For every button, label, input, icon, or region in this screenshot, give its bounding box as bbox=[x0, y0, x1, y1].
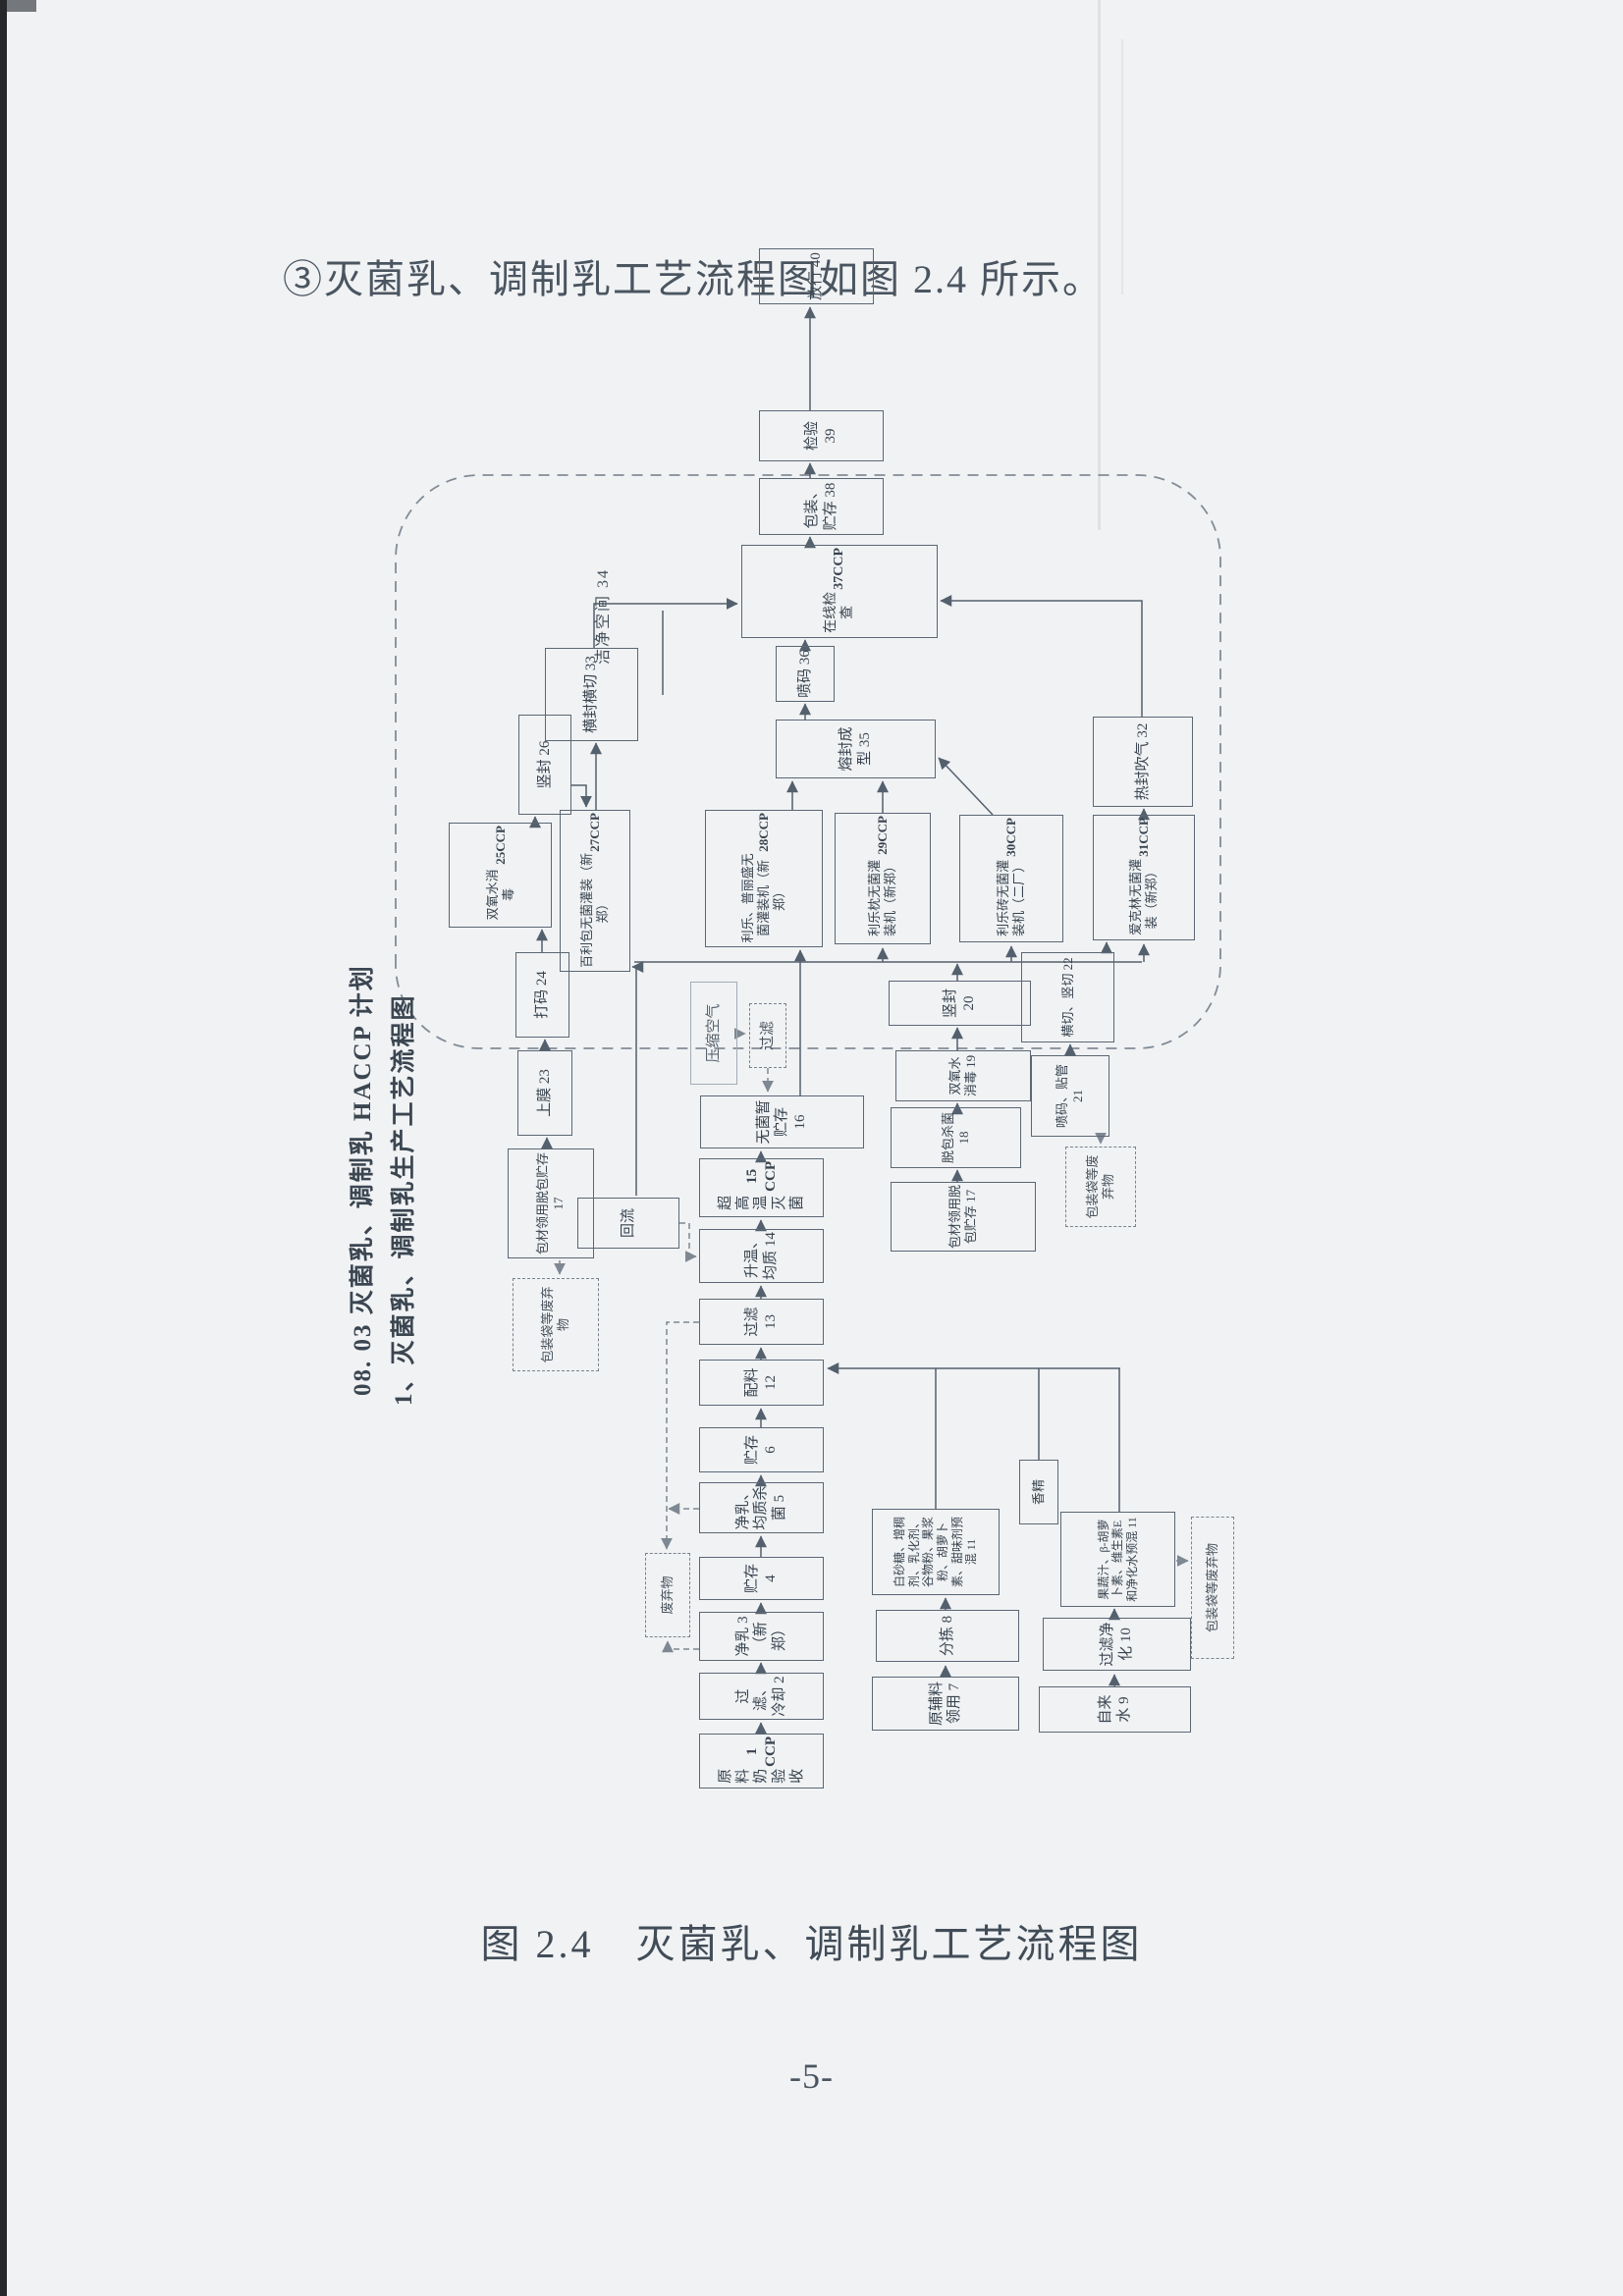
flow-node-xiangjing: 香精 bbox=[1019, 1460, 1058, 1524]
flow-node-17b: 包材领用脱包贮存 17 bbox=[891, 1182, 1036, 1252]
flow-node-39: 检验 39 bbox=[759, 410, 884, 461]
chart-title-line1: 08. 03 灭菌乳、调制乳 HACCP 计划 bbox=[343, 964, 378, 1396]
flow-node-40: 放行 40 bbox=[759, 248, 874, 304]
flow-node-36: 喷码 36 bbox=[776, 646, 835, 702]
flow-connector bbox=[571, 785, 586, 807]
flow-node-1: 原料奶验收 1 CCP bbox=[699, 1734, 824, 1789]
flow-node-32: 热封吹气 32 bbox=[1093, 717, 1193, 807]
flow-node-11a: 白砂糖、增稠剂、乳化剂、谷物粉、果浆粉、胡萝卜素、甜味剂预混 11 bbox=[872, 1509, 1000, 1595]
flow-connector bbox=[668, 1641, 699, 1649]
flow-node-19: 双氧水消毒 19 bbox=[895, 1050, 1031, 1101]
flowchart-landscape: 08. 03 灭菌乳、调制乳 HACCP 计划 1、灭菌乳、调制乳生产工艺流程图… bbox=[339, 236, 1237, 1796]
flow-node-37: 在线检查 37CCP bbox=[741, 545, 938, 638]
flow-connector bbox=[679, 1223, 696, 1256]
flow-node-15: 超高温灭菌 15 CCP bbox=[699, 1158, 824, 1217]
flow-node-35: 熔封成型 35 bbox=[776, 720, 936, 778]
flow-node-38: 包装、贮存 38 bbox=[759, 478, 884, 535]
flow-node-29: 利乐枕无菌灌装机（新郑）29CCP bbox=[835, 813, 931, 944]
flow-node-guolv: 过滤 bbox=[749, 1003, 786, 1068]
flow-node-21: 喷码、贴管 21 bbox=[1031, 1055, 1109, 1137]
flow-node-waste4: 废弃物 bbox=[645, 1553, 690, 1637]
chart-title-line2: 1、灭菌乳、调制乳生产工艺流程图 bbox=[384, 993, 419, 1406]
flow-node-28: 利乐、普丽盛无菌灌装机（新郑）28CCP bbox=[705, 810, 823, 947]
flow-node-huiliu: 回流 bbox=[577, 1198, 679, 1249]
flow-node-2: 过滤、冷却 2 bbox=[699, 1673, 824, 1720]
flow-connector bbox=[939, 758, 993, 815]
flow-node-12: 配料 12 bbox=[699, 1360, 824, 1406]
flow-connector bbox=[667, 1322, 699, 1549]
flow-node-waste2: 包装袋等废弃物 bbox=[1065, 1147, 1136, 1227]
flow-node-8: 分拣 8 bbox=[876, 1610, 1019, 1662]
flow-node-11b: 果蔬汁、β-胡萝卜素、维生素E和净化水预混 11 bbox=[1060, 1512, 1175, 1607]
flow-node-yasuo: 压缩空气 bbox=[690, 982, 737, 1085]
flow-node-4: 贮存 4 bbox=[699, 1557, 824, 1600]
flow-node-13: 过滤 13 bbox=[699, 1299, 824, 1345]
flow-node-waste3: 包装袋等废弃物 bbox=[1191, 1517, 1234, 1659]
flow-node-5: 净乳、均质杀菌 5 bbox=[699, 1482, 824, 1533]
flow-node-14: 升温、均质 14 bbox=[699, 1229, 824, 1283]
figure-caption: 图 2.4 灭菌乳、调制乳工艺流程图 bbox=[0, 1912, 1623, 1969]
flow-node-waste1: 包装袋等废弃物 bbox=[513, 1278, 599, 1371]
scan-smudge-artifact bbox=[7, 0, 36, 12]
flow-node-31: 爱克林无菌灌装（新郑）31CCP bbox=[1093, 815, 1195, 940]
flow-node-9: 自来水 9 bbox=[1039, 1686, 1191, 1733]
flow-node-27: 百利包无菌灌装（新郑）27CCP bbox=[560, 810, 630, 972]
flow-node-label34: 洁净空间 34 bbox=[586, 528, 622, 705]
flow-node-16: 无菌暂贮存 16 bbox=[700, 1095, 864, 1148]
flow-node-3: 净乳 3（新郑） bbox=[699, 1612, 824, 1661]
flow-node-10: 过滤净化 10 bbox=[1043, 1618, 1191, 1671]
flow-node-25: 双氧水消毒 25CCP bbox=[449, 823, 552, 928]
flow-node-18: 脱包杀菌 18 bbox=[891, 1107, 1021, 1168]
flow-node-7: 原辅料领用 7 bbox=[872, 1677, 1019, 1731]
flow-node-30: 利乐砖无菌灌装机（二厂）30CCP bbox=[959, 815, 1063, 942]
flow-node-23: 上膜 23 bbox=[517, 1050, 572, 1136]
page-number: -5- bbox=[0, 2056, 1623, 2097]
flowchart-rotated-wrap: 08. 03 灭菌乳、调制乳 HACCP 计划 1、灭菌乳、调制乳生产工艺流程图… bbox=[339, 236, 1237, 1796]
flow-connector bbox=[632, 967, 636, 1196]
flow-connector bbox=[941, 601, 1142, 717]
scanned-document-page: ③灭菌乳、调制乳工艺流程图如图 2.4 所示。 08. 03 灭菌乳、调制乳 H… bbox=[0, 0, 1623, 2296]
flow-node-6: 贮存 6 bbox=[699, 1427, 824, 1472]
flow-node-20: 竖封 20 bbox=[889, 981, 1031, 1026]
flow-node-22: 横切、竖切 22 bbox=[1021, 952, 1114, 1042]
